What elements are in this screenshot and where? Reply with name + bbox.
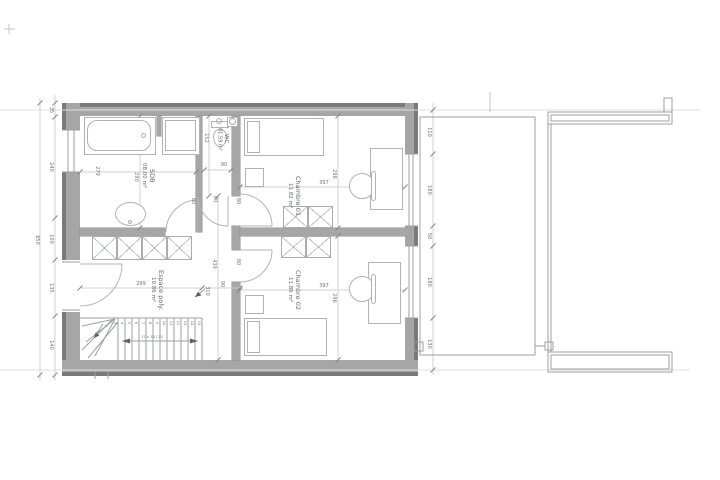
room-label-espace-poly: Espace poly. 10.86 m² [149, 261, 164, 319]
dim-door-wc: 80 [213, 196, 218, 202]
espace-poly-closet-cell [117, 236, 142, 260]
dim-left-135: 135 [49, 283, 54, 292]
stair-step-number: 5 [127, 322, 131, 324]
stair-step-number: 1 [95, 331, 99, 333]
dim-door-ch01: 80 [236, 198, 241, 204]
espace-poly-closet-cell [142, 236, 167, 260]
balcony-outline [420, 117, 535, 355]
stair-step-number: 13 [183, 321, 187, 326]
room-name: SDB [147, 155, 155, 197]
chambre01-closet-cell [308, 206, 333, 228]
room-name: WC [222, 123, 229, 155]
wc-basin-icon [229, 118, 236, 125]
stair-walkline-label: 17 x 18 / 25 [141, 335, 163, 339]
chambre02-closet-cell [281, 236, 306, 258]
chambre01-chair-back [371, 171, 376, 201]
dim-hall-width: 90 [220, 281, 225, 287]
room-label-sdb: SDB 08.00 m² [141, 155, 155, 197]
room-area: 11.82 m² [287, 165, 294, 227]
room-name: Chambre 01 [293, 165, 301, 227]
floor-plan-canvas: SDB 08.00 m² WC 01.59 m² Chambre 01 11.8… [0, 0, 720, 480]
stair-step-number: 10 [162, 321, 166, 326]
stair-step-number: 12 [176, 321, 180, 326]
dim-stair-opening: 310 [205, 286, 210, 295]
stair-step-number: 7 [141, 322, 145, 324]
dim-left-140: 140 [49, 340, 54, 349]
dim-door-sdb: 80 [191, 198, 196, 204]
room-label-chambre01: Chambre 01 11.82 m² [286, 165, 301, 227]
room-name: Chambre 02 [293, 259, 301, 321]
dim-left-100: 100 [49, 234, 54, 243]
room-label-chambre02: Chambre 02 11.86 m² [286, 259, 301, 321]
dim-wc-height: 152 [204, 133, 209, 142]
stair-step-number: 9 [155, 322, 159, 324]
espace-poly-closet-cell [92, 236, 117, 260]
room-area: 10.86 m² [150, 261, 157, 319]
stair-step-number: 11 [169, 321, 173, 326]
stair-step-number: 6 [134, 322, 138, 324]
dim-sdb-width: 279 [95, 166, 100, 175]
chambre02-nightstand [245, 295, 264, 314]
dim-right-180b: 180 [427, 277, 432, 286]
dim-hall-length: 439 [212, 259, 217, 268]
chambre02-closet-cell [306, 236, 331, 258]
chambre01-pillow [247, 121, 260, 153]
dim-ch02-width: 397 [319, 284, 328, 289]
dim-ch01-height: 298 [332, 169, 337, 178]
room-area: 01.59 m² [216, 123, 222, 155]
misc-marks [4, 24, 490, 112]
room-label-wc: WC 01.59 m² [216, 123, 229, 155]
sdb-sink-tap-icon [128, 220, 132, 224]
neighbor-structures [414, 98, 672, 372]
dim-poly-width: 299 [136, 282, 145, 287]
espace-poly-closet-cell [167, 236, 192, 260]
stair-step-number: 2 [104, 325, 108, 327]
dim-ch02-height: 296 [332, 293, 337, 302]
dim-door-ch02: 80 [236, 259, 241, 265]
dim-sdb-height: 290 [134, 172, 139, 181]
dim-wc-width: 90 [221, 163, 227, 168]
stair-step-number: 4 [120, 322, 124, 324]
stair-step-number: 3 [113, 322, 117, 324]
dim-ch01-width: 397 [319, 181, 328, 186]
dim-right-180a: 180 [427, 185, 432, 194]
stair-step-number: 8 [148, 322, 152, 324]
room-area: 08.00 m² [141, 155, 148, 197]
dim-left-240: 240 [49, 162, 54, 171]
shower-inner [165, 120, 196, 151]
chambre02-pillow [247, 321, 260, 353]
stair-step-number: 14 [190, 321, 194, 326]
chambre02-chair-back [371, 274, 376, 304]
dim-right-50: 50 [427, 233, 432, 239]
dim-right-130: 130 [427, 339, 432, 348]
room-name: Espace poly. [156, 261, 164, 319]
room-area: 11.86 m² [287, 259, 294, 321]
dim-left-35: 35 [49, 107, 54, 113]
dim-left-total: 650 [35, 235, 40, 244]
dim-right-110: 110 [427, 127, 432, 136]
bathtub-drain-icon [141, 133, 146, 138]
stair-step-number: 15 [197, 321, 201, 326]
below-wall-ticks [95, 372, 108, 379]
chambre01-nightstand [245, 168, 264, 187]
